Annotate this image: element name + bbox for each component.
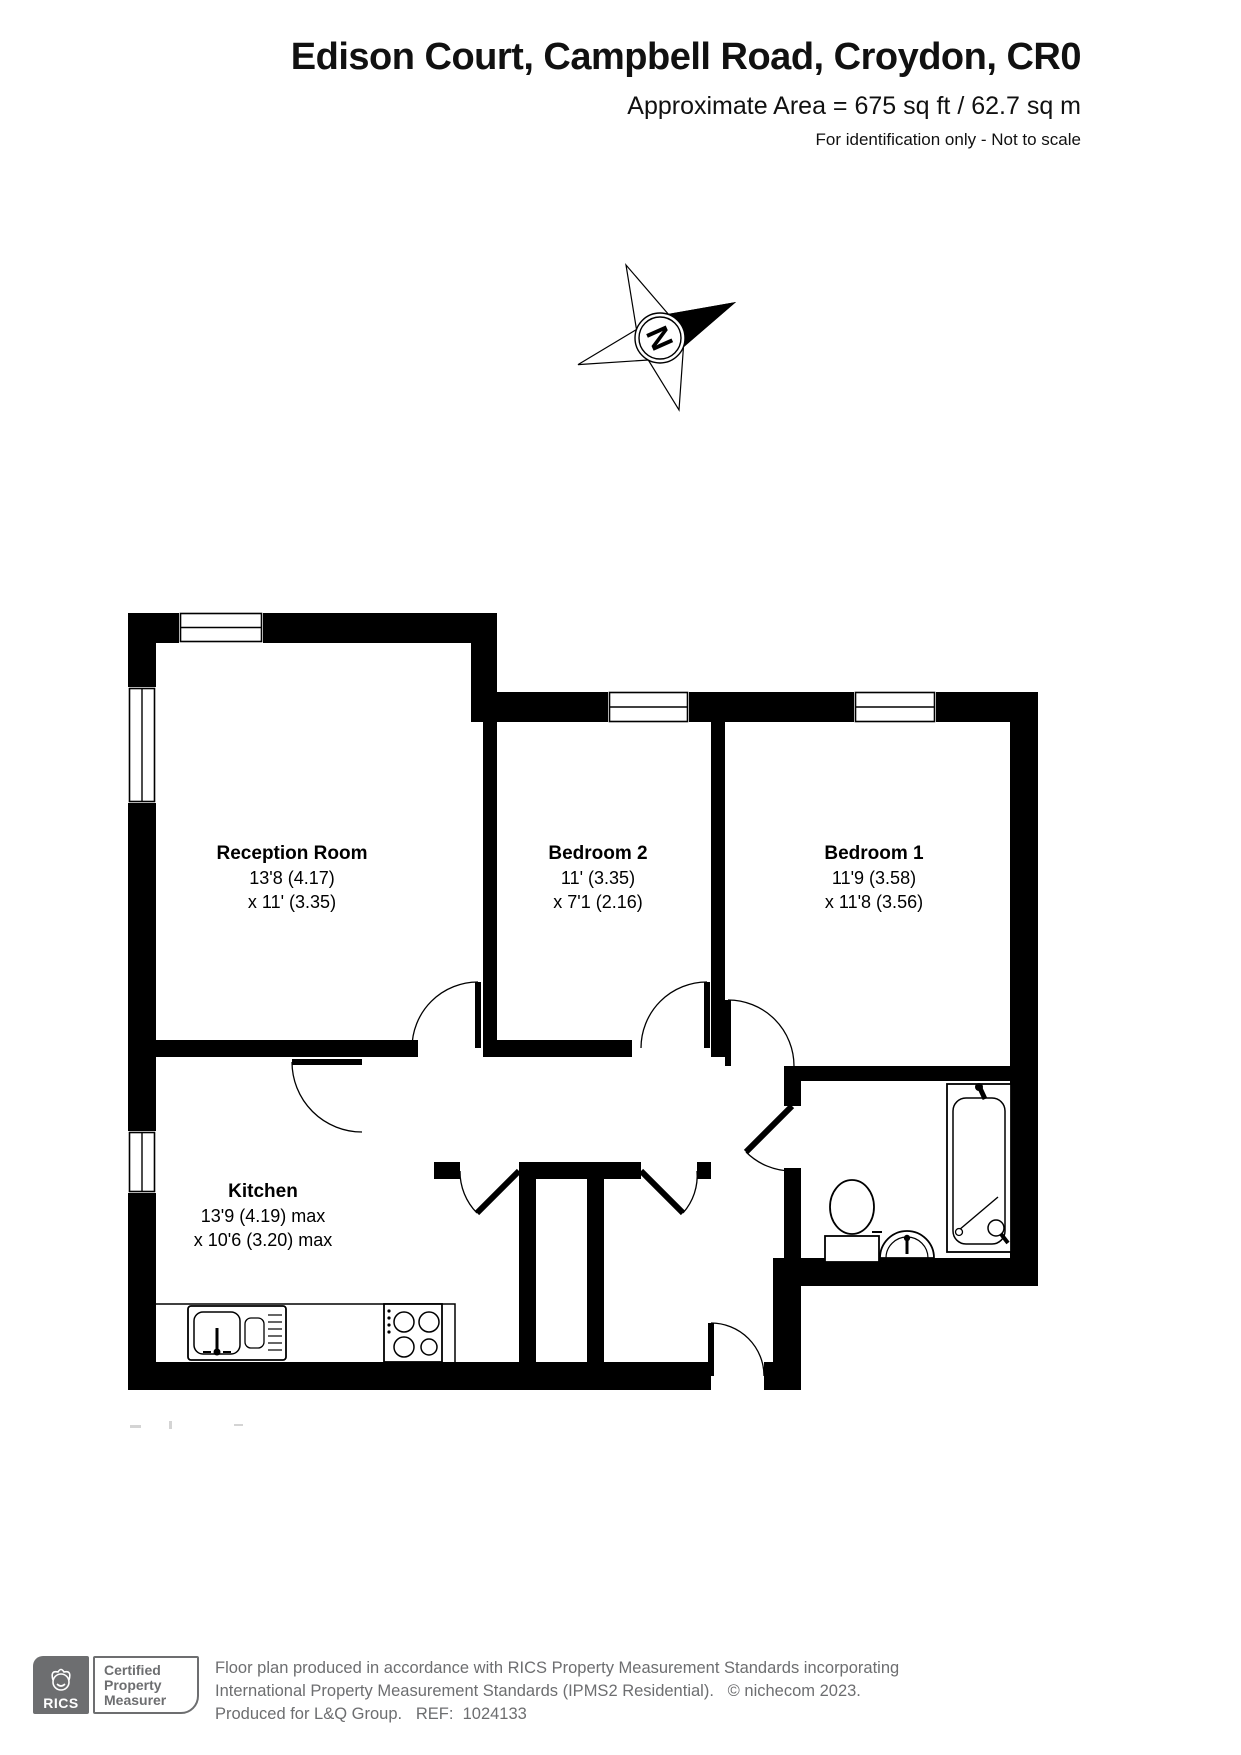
- room-dimension: x 11' (3.35): [217, 890, 368, 914]
- window-icon: [608, 690, 689, 724]
- room-name: Kitchen: [194, 1180, 333, 1204]
- room-label-reception: Reception Room 13'8 (4.17) x 11' (3.35): [217, 842, 368, 914]
- badge-line: Property: [104, 1678, 197, 1693]
- room-dimension: 13'8 (4.17): [217, 866, 368, 890]
- door-hall-left: [460, 1171, 519, 1213]
- room-dimension: x 11'8 (3.56): [824, 890, 923, 914]
- room-label-bedroom1: Bedroom 1 11'9 (3.58) x 11'8 (3.56): [824, 842, 923, 914]
- door-kitchen: [292, 1062, 362, 1132]
- door-bedroom2: [641, 982, 707, 1048]
- badge-line: Measurer: [104, 1693, 197, 1708]
- footer-disclaimer: Floor plan produced in accordance with R…: [215, 1656, 899, 1726]
- rics-logo: RICS: [33, 1656, 89, 1714]
- window-icon: [126, 687, 158, 803]
- disclaimer-line: International Property Measurement Stand…: [215, 1680, 899, 1703]
- window-icon: [854, 690, 936, 724]
- window-icon: [179, 611, 263, 645]
- certified-property-measurer-badge: Certified Property Measurer: [93, 1656, 199, 1714]
- rics-label: RICS: [43, 1696, 78, 1710]
- room-dimension: 13'9 (4.19) max: [194, 1204, 333, 1228]
- room-label-kitchen: Kitchen 13'9 (4.19) max x 10'6 (3.20) ma…: [194, 1180, 333, 1252]
- hob-icon: [384, 1304, 442, 1362]
- rics-lion-icon: [43, 1666, 79, 1696]
- kitchen-sink-icon: [188, 1306, 286, 1360]
- print-artifacts: [130, 1421, 243, 1429]
- room-label-bedroom2: Bedroom 2 11' (3.35) x 7'1 (2.16): [548, 842, 647, 914]
- room-dimension: 11'9 (3.58): [824, 866, 923, 890]
- badge-line: Certified: [104, 1663, 197, 1678]
- floorplan-page: Edison Court, Campbell Road, Croydon, CR…: [0, 0, 1241, 1755]
- bathtub-icon: [947, 1083, 1011, 1252]
- door-entrance: [711, 1323, 764, 1376]
- disclaimer-line: Floor plan produced in accordance with R…: [215, 1657, 899, 1680]
- disclaimer-line: Produced for L&Q Group. REF: 1024133: [215, 1703, 899, 1726]
- footer: RICS Certified Property Measurer Floor p…: [33, 1656, 899, 1726]
- door-bedroom1: [728, 1000, 794, 1066]
- door-bathroom: [746, 1106, 792, 1171]
- toilet-icon: [825, 1180, 882, 1262]
- north-arrow-icon: N: [578, 265, 734, 410]
- room-name: Reception Room: [217, 842, 368, 866]
- room-dimension: 11' (3.35): [548, 866, 647, 890]
- window-icon: [126, 1131, 158, 1193]
- room-name: Bedroom 1: [824, 842, 923, 866]
- door-hall-right: [641, 1171, 697, 1213]
- walls: [128, 613, 1038, 1390]
- room-dimension: x 7'1 (2.16): [548, 890, 647, 914]
- room-dimension: x 10'6 (3.20) max: [194, 1228, 333, 1252]
- door-reception: [412, 982, 478, 1048]
- basin-icon: [880, 1231, 934, 1258]
- room-name: Bedroom 2: [548, 842, 647, 866]
